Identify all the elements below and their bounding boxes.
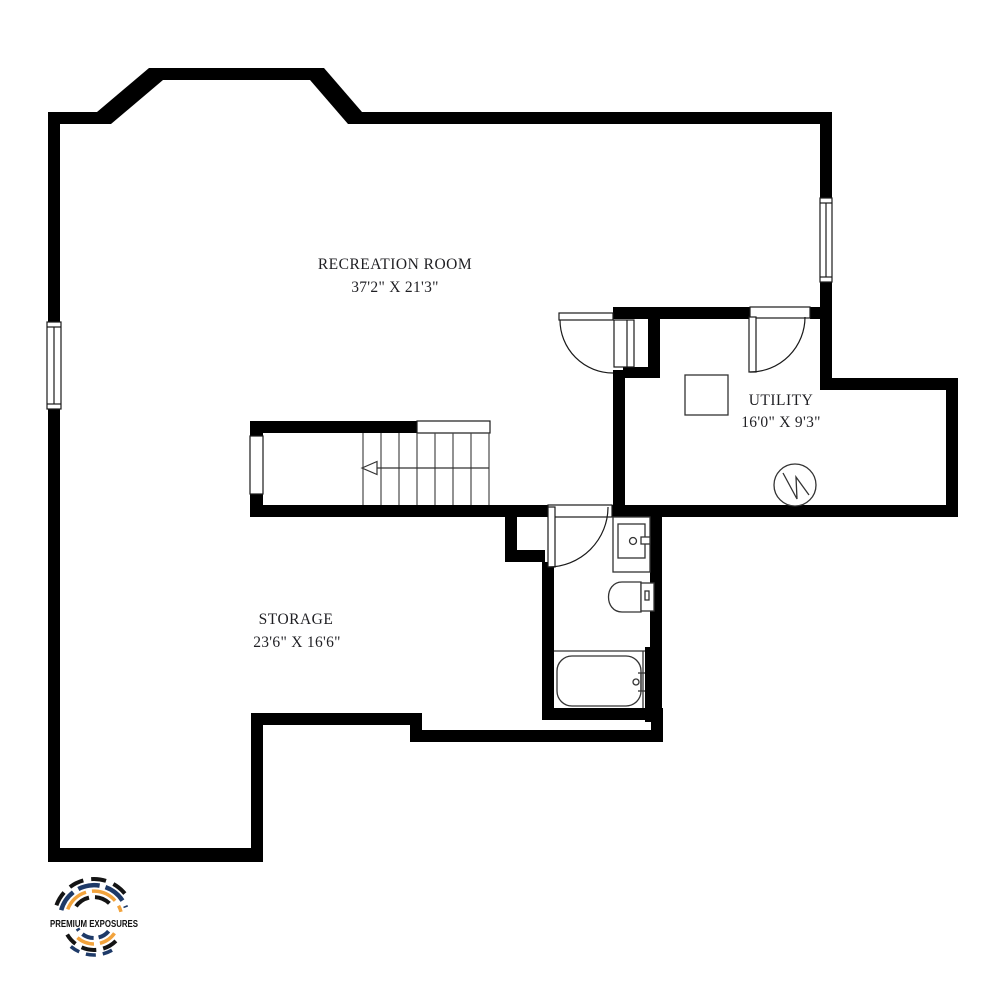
premium-exposures-logo: PREMIUM EXPOSURES — [50, 879, 138, 955]
wall-segment — [505, 550, 545, 562]
furnace — [685, 375, 728, 415]
doors — [548, 313, 805, 567]
window-right-wall — [820, 198, 832, 282]
bathtub — [554, 651, 645, 708]
sink-vanity — [613, 517, 650, 572]
wall-segment — [613, 370, 625, 517]
room-label-storage: STORAGE — [259, 611, 334, 628]
wall-segment — [612, 505, 958, 517]
wall-segment — [810, 307, 832, 319]
wall-segment — [149, 68, 313, 80]
wall-segment — [250, 494, 263, 517]
logo-arc — [74, 933, 115, 944]
wall-segment — [820, 112, 832, 198]
door-swing-arc — [560, 320, 613, 373]
sink-faucet — [630, 538, 637, 545]
door-opening — [548, 505, 612, 517]
stair-west-opening — [250, 436, 263, 494]
wall-segment — [250, 421, 263, 436]
door-leaf — [548, 507, 555, 567]
logo-arc — [68, 891, 121, 912]
toilet — [609, 582, 655, 612]
wall-segment — [250, 505, 548, 517]
wall-diagonal-right — [310, 68, 362, 124]
toilet-bowl — [609, 582, 642, 612]
door-recreation-room-west — [559, 313, 613, 373]
wall-segment — [410, 713, 422, 742]
water-heater-tank — [774, 464, 816, 506]
room-label-utility: UTILITY — [749, 392, 814, 409]
staircase — [362, 433, 489, 505]
door-leaf — [749, 317, 756, 372]
floorplan-page: RECREATION ROOM 37'2" X 21'3" UTILITY 16… — [0, 0, 991, 1000]
tub-basin — [557, 656, 641, 706]
wall-segment — [251, 713, 263, 862]
room-dims-recreation: 37'2" X 21'3" — [351, 279, 439, 296]
window-left-wall — [47, 322, 61, 409]
wall-segment — [358, 112, 832, 124]
door-frame — [614, 320, 634, 367]
door-swing-arc — [750, 317, 805, 372]
water-heater — [774, 464, 816, 506]
wall-segment — [623, 367, 660, 378]
room-dims-utility: 16'0" X 9'3" — [741, 414, 821, 431]
logo-text: PREMIUM EXPOSURES — [50, 919, 138, 930]
wall-segment — [250, 421, 417, 433]
wall-segment — [48, 409, 60, 862]
wall-segment — [820, 282, 832, 390]
wall-segment — [48, 848, 263, 862]
toilet-flush — [645, 591, 649, 600]
wall-segment — [542, 708, 663, 720]
wall-segment — [48, 112, 60, 322]
room-dims-storage: 23'6" X 16'6" — [253, 634, 341, 651]
wall-segment — [410, 730, 663, 742]
wall-segment — [820, 378, 958, 390]
logo-arc — [76, 897, 112, 906]
door-opening — [750, 307, 810, 318]
sink-handle — [641, 537, 650, 544]
door-recreation-to-utility — [749, 317, 805, 372]
wall-segment — [542, 562, 554, 720]
walls — [48, 68, 958, 862]
stair-open-edge — [417, 421, 490, 433]
wall-segment — [613, 307, 750, 319]
floorplan-drawing: RECREATION ROOM 37'2" X 21'3" UTILITY 16… — [0, 0, 991, 1000]
room-label-recreation: RECREATION ROOM — [318, 256, 472, 273]
wall-segment — [251, 713, 422, 725]
logo-arcs — [56, 879, 128, 955]
tub-faucet-spout — [633, 679, 639, 685]
stair-direction-arrow — [362, 462, 377, 475]
openings-and-windows — [47, 198, 832, 517]
wall-segment — [946, 378, 958, 517]
door-leaf — [559, 313, 613, 320]
